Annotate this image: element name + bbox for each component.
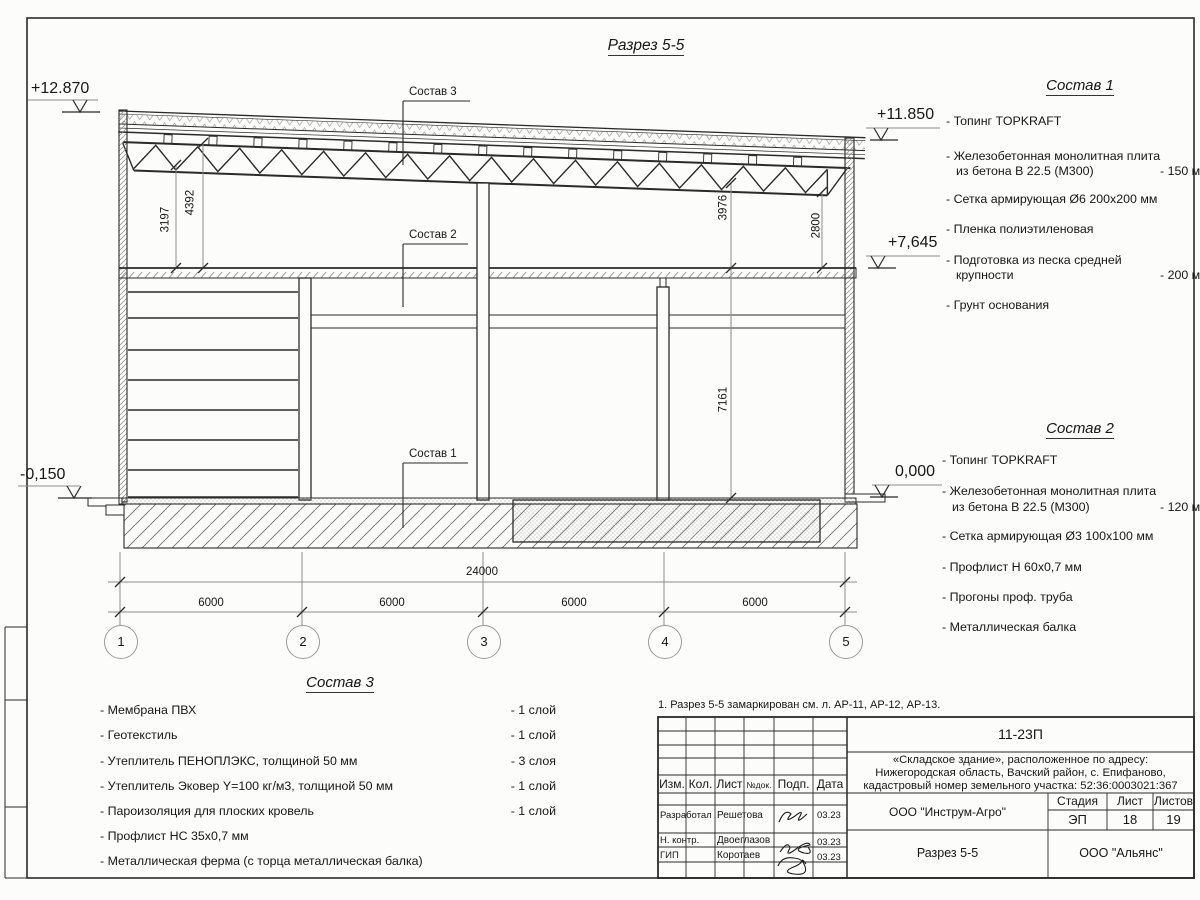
list-item: из бетона В 22.5 (М300) — [956, 164, 1094, 178]
axis-bubble-5: 5 — [829, 625, 863, 659]
titleblock-sheet-title: Разрез 5-5 — [847, 846, 1048, 860]
axis-bubble-4: 4 — [648, 625, 682, 659]
titleblock-col-kol: Кол. — [686, 778, 715, 792]
list-item-value: - 1 слой — [468, 779, 556, 793]
dim-bay-4: 6000 — [715, 597, 795, 610]
list-item: - Топинг TOPKRAFT — [946, 114, 1061, 128]
titleblock-role-2: Н. контр. — [660, 836, 699, 847]
elevation-top-right: +11.850 — [877, 106, 934, 124]
list-item: - Металлическая балка — [942, 620, 1076, 634]
titleblock-org: ООО "Инструм-Агро" — [847, 806, 1048, 820]
dim-3197: 3197 — [159, 190, 172, 250]
list-item-value: - 200 мм — [1160, 268, 1200, 282]
list-item: - Прогоны проф. труба — [942, 590, 1073, 604]
leader-sostav2: Состав 2 — [409, 229, 457, 242]
titleblock-col-data: Дата — [813, 778, 847, 792]
drawing-note: 1. Разрез 5-5 замаркирован см. л. АР-11,… — [658, 699, 940, 712]
elevation-zero-right: 0,000 — [895, 463, 935, 481]
list-item: - Профлист НС 35x0,7 мм — [100, 829, 249, 843]
list-item: - Утеплитель Эковер Y=100 кг/м3, толщино… — [100, 779, 393, 793]
signature-dvoeglazov — [780, 843, 810, 853]
list-item: крупности — [956, 268, 1014, 282]
elevation-mid-right: +7,645 — [888, 234, 937, 252]
titleblock-project-line1: «Складское здание», расположенное по адр… — [847, 754, 1194, 767]
ground-slab — [88, 494, 885, 548]
list-item: из бетона В 22.5 (М300) — [952, 500, 1090, 514]
titleblock-sheet-value: 18 — [1107, 813, 1153, 828]
page-title: Разрез 5-5 — [596, 37, 696, 55]
list-item-value: - 150 мм — [1160, 164, 1200, 178]
titleblock-col-podp: Подп. — [774, 778, 813, 792]
axis-bubble-2: 2 — [286, 625, 320, 659]
list-item: - Профлист Н 60x0,7 мм — [942, 560, 1082, 574]
titleblock-project-line3: кадастровый номер земельного участка: 52… — [847, 780, 1194, 793]
dim-total: 24000 — [432, 566, 532, 579]
list-item: - Мембрана ПВХ — [100, 703, 196, 717]
axis-bubble-3: 3 — [467, 625, 501, 659]
dim-2800: 2800 — [810, 196, 823, 256]
list-sostav2-title-text: Состав 2 — [1046, 420, 1114, 439]
dim-7161: 7161 — [717, 370, 730, 430]
signature-reshetova — [779, 812, 807, 822]
titleblock-name-3: Коротаев — [717, 850, 760, 862]
list-item: - Утеплитель ПЕНОПЛЭКС, толщиной 50 мм — [100, 754, 357, 768]
dim-bay-2: 6000 — [352, 597, 432, 610]
list-sostav1-title: Состав 1 — [980, 77, 1180, 94]
list-item: - Железобетонная монолитная плита — [946, 149, 1160, 163]
titleblock-doc-number: 11-23П — [847, 726, 1194, 742]
page-title-text: Разрез 5-5 — [608, 37, 685, 56]
dim-3976: 3976 — [717, 178, 730, 238]
titleblock-col-list: Лист — [715, 778, 744, 792]
sheet-frame — [5, 18, 1194, 878]
signatures — [778, 812, 810, 874]
titleblock-date-2: 03.23 — [817, 838, 841, 849]
titleblock-stage-label: Стадия — [1048, 795, 1107, 809]
list-item: - Металлическая ферма (с торца металличе… — [100, 854, 423, 868]
drawing-sheet: { "sheet": { "title": "Разрез 5-5", "not… — [0, 0, 1200, 900]
titleblock-sheets-label: Листов — [1153, 795, 1194, 809]
axis-bubble-1: 1 — [104, 625, 138, 659]
titleblock-date-3: 03.23 — [817, 853, 841, 864]
titleblock-sheets-value: 19 — [1153, 813, 1194, 828]
titleblock-company: ООО "Альянс" — [1048, 846, 1194, 860]
list-item: - Подготовка из песка средней — [946, 253, 1122, 267]
list-sostav3-title: Состав 3 — [240, 674, 440, 691]
rack-lines — [128, 292, 298, 497]
list-item-value: - 1 слой — [468, 804, 556, 818]
elevation-top-left: +12.870 — [31, 80, 89, 98]
list-item: - Топинг TOPKRAFT — [942, 453, 1057, 467]
list-item: - Пленка полиэтиленовая — [946, 222, 1094, 236]
list-item-value: - 1 слой — [468, 703, 556, 717]
titleblock-name-2: Двоеглазов — [717, 835, 770, 847]
list-item-value: - 1 слой — [468, 728, 556, 742]
list-sostav2-title: Состав 2 — [980, 420, 1180, 437]
titleblock-name-1: Решетова — [717, 810, 763, 822]
list-item: - Грунт основания — [946, 298, 1049, 312]
leader-sostav3: Состав 3 — [409, 86, 457, 99]
dim-bay-3: 6000 — [534, 597, 614, 610]
dim-4392: 4392 — [184, 173, 197, 233]
titleblock-sheet-label: Лист — [1107, 795, 1153, 809]
list-item-value: - 120 мм — [1160, 500, 1200, 514]
roof-truss — [117, 111, 866, 197]
titleblock-stage-value: ЭП — [1048, 813, 1107, 828]
dim-bay-1: 6000 — [171, 597, 251, 610]
elevation-zero-left: -0,150 — [20, 466, 65, 484]
titleblock-project-line2: Нижегородская область, Вачский район, с.… — [847, 767, 1194, 780]
list-sostav3-title-text: Состав 3 — [306, 674, 374, 693]
list-item-value: - 3 слоя — [468, 754, 556, 768]
list-item: - Железобетонная монолитная плита — [942, 484, 1156, 498]
list-item: - Сетка армирующая Ø3 100x100 мм — [942, 529, 1153, 543]
signature-korotaev — [778, 858, 806, 875]
list-item: - Сетка армирующая Ø6 200x200 мм — [946, 192, 1157, 206]
titleblock-col-izm: Изм. — [658, 778, 686, 792]
list-item: - Геотекстиль — [100, 728, 177, 742]
titleblock-date-1: 03.23 — [817, 811, 841, 822]
list-item: - Пароизоляция для плоских кровель — [100, 804, 314, 818]
bottom-dims — [108, 552, 857, 625]
titleblock-col-ndok: №док. — [744, 781, 774, 791]
leader-sostav1: Состав 1 — [409, 448, 457, 461]
list-sostav1-title-text: Состав 1 — [1046, 77, 1114, 96]
columns — [299, 183, 669, 500]
titleblock-role-3: ГИП — [660, 851, 679, 862]
titleblock-role-1: Разработал — [660, 811, 712, 822]
